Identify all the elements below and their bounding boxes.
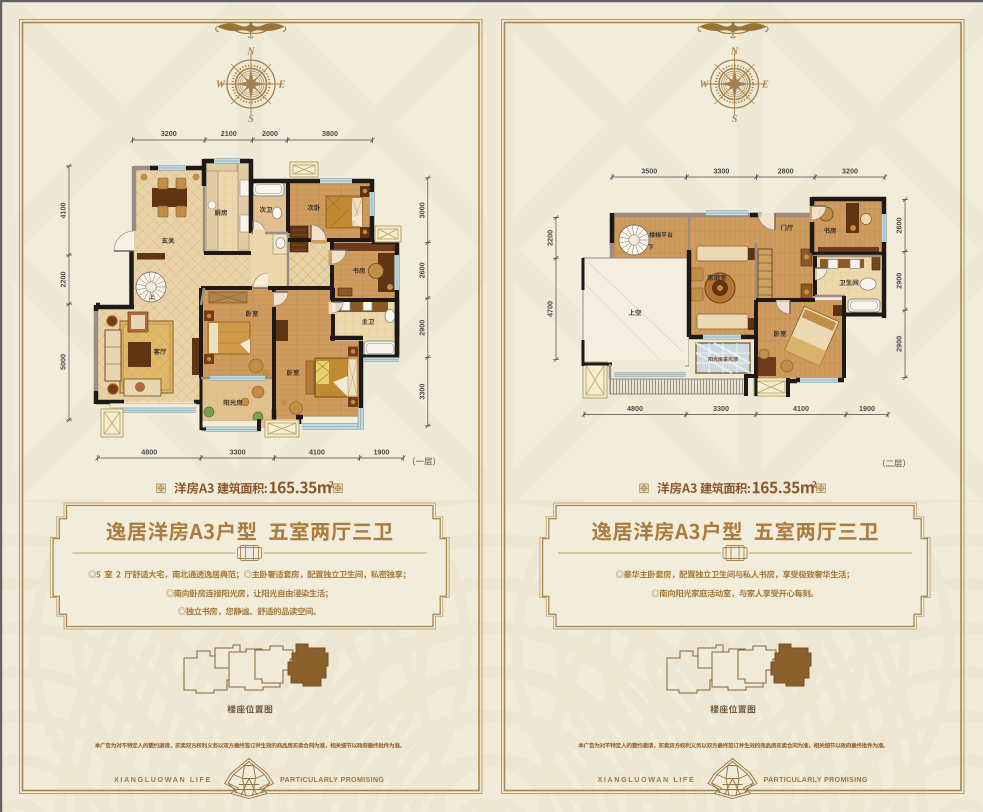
svg-text:1900: 1900 bbox=[859, 404, 875, 413]
svg-text:3200: 3200 bbox=[842, 167, 858, 176]
svg-text:2900: 2900 bbox=[895, 273, 904, 289]
svg-text:N: N bbox=[246, 47, 255, 58]
svg-text:3800: 3800 bbox=[322, 129, 338, 138]
svg-text:XIANGLUOWAN LIFE: XIANGLUOWAN LIFE bbox=[114, 775, 212, 784]
svg-text:S: S bbox=[248, 114, 254, 125]
svg-text:2900: 2900 bbox=[895, 336, 904, 352]
svg-text:4800: 4800 bbox=[627, 404, 643, 413]
svg-text:4100: 4100 bbox=[309, 448, 325, 457]
svg-text:4100: 4100 bbox=[793, 404, 809, 413]
svg-text:3300: 3300 bbox=[713, 167, 729, 176]
svg-text:3300: 3300 bbox=[230, 448, 246, 457]
svg-text:E: E bbox=[278, 80, 286, 91]
svg-text:5000: 5000 bbox=[59, 354, 68, 370]
svg-text:PARTICULARLY PROMISING: PARTICULARLY PROMISING bbox=[280, 775, 384, 784]
svg-text:E: E bbox=[761, 80, 769, 91]
svg-text:3000: 3000 bbox=[417, 202, 426, 218]
svg-text:3200: 3200 bbox=[161, 129, 177, 138]
svg-text:2200: 2200 bbox=[59, 272, 68, 288]
svg-text:W: W bbox=[216, 80, 226, 91]
svg-text:3300: 3300 bbox=[713, 404, 729, 413]
svg-text:4100: 4100 bbox=[59, 203, 68, 219]
svg-text:N: N bbox=[730, 47, 739, 58]
svg-text:W: W bbox=[700, 80, 710, 91]
svg-text:4700: 4700 bbox=[546, 301, 555, 317]
svg-text:2000: 2000 bbox=[262, 129, 278, 138]
svg-text:4800: 4800 bbox=[141, 448, 157, 457]
svg-text:2900: 2900 bbox=[417, 320, 426, 336]
svg-text:2600: 2600 bbox=[417, 262, 426, 278]
svg-text:1900: 1900 bbox=[373, 448, 389, 457]
svg-text:3500: 3500 bbox=[641, 167, 657, 176]
svg-text:2200: 2200 bbox=[546, 230, 555, 246]
svg-text:2100: 2100 bbox=[221, 129, 237, 138]
svg-text:PARTICULARLY PROMISING: PARTICULARLY PROMISING bbox=[764, 775, 868, 784]
svg-text:2600: 2600 bbox=[895, 218, 904, 234]
svg-text:S: S bbox=[732, 114, 738, 125]
svg-text:2800: 2800 bbox=[778, 167, 794, 176]
svg-text:3300: 3300 bbox=[417, 384, 426, 400]
svg-text:XIANGLUOWAN LIFE: XIANGLUOWAN LIFE bbox=[598, 775, 696, 784]
